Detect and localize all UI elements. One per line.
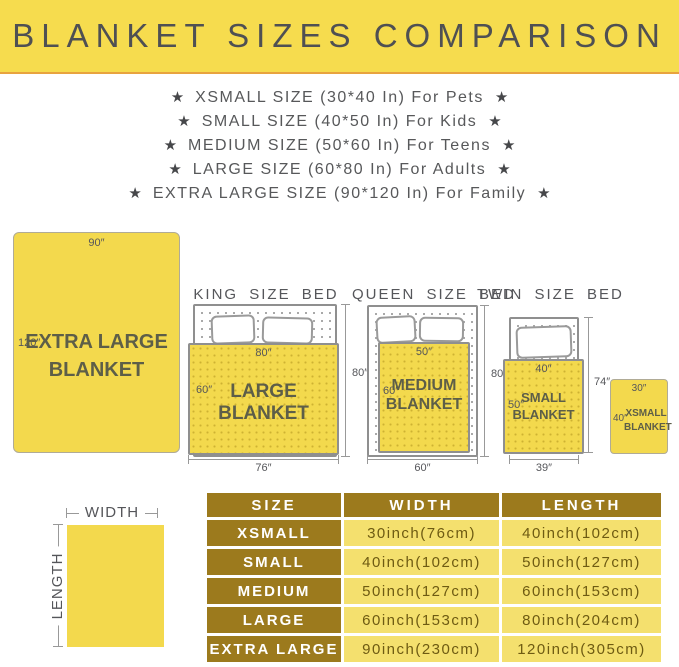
extra-large-blanket: 90″ 120″ EXTRA LARGE BLANKET bbox=[13, 232, 180, 453]
king-height-dim-line bbox=[341, 304, 350, 457]
width-legend-label: WIDTH bbox=[79, 504, 145, 522]
size-list-item: ★EXTRA LARGE SIZE (90*120 In) For Family… bbox=[0, 182, 679, 206]
star-icon: ★ bbox=[488, 113, 501, 130]
size-table: SIZE WIDTH LENGTH XSMALL30inch(76cm)40in… bbox=[207, 493, 661, 662]
table-cell-width: 30inch(76cm) bbox=[344, 520, 499, 546]
table-cell-size: MEDIUM bbox=[207, 578, 341, 604]
legend-blanket bbox=[67, 525, 164, 647]
twin-blanket-label-line2: BLANKET bbox=[512, 407, 574, 422]
queen-height-dim-line bbox=[480, 305, 489, 457]
twin-blanket-width-dim: 40″ bbox=[505, 363, 582, 375]
xl-width-dim: 90″ bbox=[14, 237, 179, 249]
banner-divider bbox=[0, 72, 679, 74]
xsmall-blanket-label-line1: XSMALL bbox=[625, 408, 666, 419]
table-header-width: WIDTH bbox=[344, 493, 499, 517]
king-large-blanket: 80″ 60″ LARGE BLANKET bbox=[188, 343, 339, 455]
table-cell-size: XSMALL bbox=[207, 520, 341, 546]
table-cell-length: 120inch(305cm) bbox=[502, 636, 661, 662]
star-icon: ★ bbox=[502, 137, 515, 154]
table-cell-length: 50inch(127cm) bbox=[502, 549, 661, 575]
twin-bed-width-dim: 39″ bbox=[509, 462, 579, 474]
xl-blanket-label-line1: EXTRA LARGE bbox=[25, 331, 168, 353]
size-list-item: ★XSMALL SIZE (30*40 In) For Pets★ bbox=[0, 86, 679, 110]
king-blanket-label: LARGE BLANKET bbox=[190, 381, 337, 425]
table-cell-width: 50inch(127cm) bbox=[344, 578, 499, 604]
size-list-item-text: EXTRA LARGE SIZE (90*120 In) For Family bbox=[153, 185, 526, 202]
size-list-item: ★LARGE SIZE (60*80 In) For Adults★ bbox=[0, 158, 679, 182]
table-cell-length: 80inch(204cm) bbox=[502, 607, 661, 633]
queen-blanket-width-dim: 50″ bbox=[380, 346, 468, 358]
queen-blanket-label-line2: BLANKET bbox=[386, 396, 462, 413]
size-list-item-text: SMALL SIZE (40*50 In) For Kids bbox=[202, 113, 478, 130]
table-cell-width: 90inch(230cm) bbox=[344, 636, 499, 662]
header-banner: BLANKET SIZES COMPARISON bbox=[0, 0, 679, 72]
width-dim-line: WIDTH bbox=[66, 508, 158, 518]
xsmall-width-dim: 30″ bbox=[611, 383, 667, 394]
table-cell-size: LARGE bbox=[207, 607, 341, 633]
star-icon: ★ bbox=[168, 161, 181, 178]
star-icon: ★ bbox=[164, 137, 177, 154]
star-icon: ★ bbox=[497, 161, 510, 178]
king-bed-width-dim: 76″ bbox=[188, 462, 339, 474]
star-icon: ★ bbox=[171, 89, 184, 106]
table-cell-length: 60inch(153cm) bbox=[502, 578, 661, 604]
size-list-item-text: XSMALL SIZE (30*40 In) For Pets bbox=[195, 89, 484, 106]
queen-bed-width-dim: 60″ bbox=[367, 462, 478, 474]
twin-pillow bbox=[515, 325, 572, 359]
size-list-item: ★SMALL SIZE (40*50 In) For Kids★ bbox=[0, 110, 679, 134]
size-list-item: ★MEDIUM SIZE (50*60 In) For Teens★ bbox=[0, 134, 679, 158]
twin-height-dim-line bbox=[584, 317, 593, 453]
blanket-sizes-infographic: BLANKET SIZES COMPARISON ★XSMALL SIZE (3… bbox=[0, 0, 679, 667]
xsmall-blanket-label-line2: BLANKET bbox=[624, 422, 672, 433]
table-cell-size: EXTRA LARGE bbox=[207, 636, 341, 662]
table-cell-length: 40inch(102cm) bbox=[502, 520, 661, 546]
star-icon: ★ bbox=[495, 89, 508, 106]
queen-bed-title: QUEEN SIZE BED bbox=[352, 286, 492, 303]
table-header-size: SIZE bbox=[207, 493, 341, 517]
queen-pillow-right bbox=[419, 317, 464, 343]
king-blanket-width-dim: 80″ bbox=[190, 347, 337, 359]
length-legend-label: LENGTH bbox=[49, 546, 67, 625]
xl-blanket-label-line2: BLANKET bbox=[49, 359, 145, 381]
size-list-item-text: LARGE SIZE (60*80 In) For Adults bbox=[193, 161, 486, 178]
table-cell-size: SMALL bbox=[207, 549, 341, 575]
size-list-item-text: MEDIUM SIZE (50*60 In) For Teens bbox=[188, 137, 491, 154]
queen-medium-blanket: 50″ 60″ MEDIUM BLANKET bbox=[378, 342, 470, 453]
king-bed-length-dim: 80″ bbox=[352, 367, 368, 379]
star-icon: ★ bbox=[128, 185, 141, 202]
star-icon: ★ bbox=[177, 113, 190, 130]
king-bed-title: KING SIZE BED bbox=[193, 286, 339, 303]
twin-bed-length-dim: 74″ bbox=[594, 376, 610, 388]
page-title: BLANKET SIZES COMPARISON bbox=[12, 17, 667, 55]
star-icon: ★ bbox=[537, 185, 550, 202]
king-pillow-left bbox=[211, 314, 256, 345]
queen-blanket-label-line1: MEDIUM bbox=[392, 377, 457, 394]
twin-blanket-label-line1: SMALL bbox=[521, 390, 566, 405]
table-cell-width: 60inch(153cm) bbox=[344, 607, 499, 633]
twin-bed-title: TWIN SIZE BED bbox=[477, 286, 617, 303]
length-dim-line: LENGTH bbox=[53, 524, 63, 647]
twin-small-blanket: 40″ 50″ SMALL BLANKET bbox=[503, 359, 584, 454]
queen-pillow-left bbox=[375, 315, 416, 344]
xsmall-blanket: 30″ 40″ XSMALL BLANKET bbox=[610, 379, 668, 454]
table-cell-width: 40inch(102cm) bbox=[344, 549, 499, 575]
table-header-length: LENGTH bbox=[502, 493, 661, 517]
king-pillow-right bbox=[262, 316, 314, 344]
size-list: ★XSMALL SIZE (30*40 In) For Pets★★SMALL … bbox=[0, 86, 679, 206]
